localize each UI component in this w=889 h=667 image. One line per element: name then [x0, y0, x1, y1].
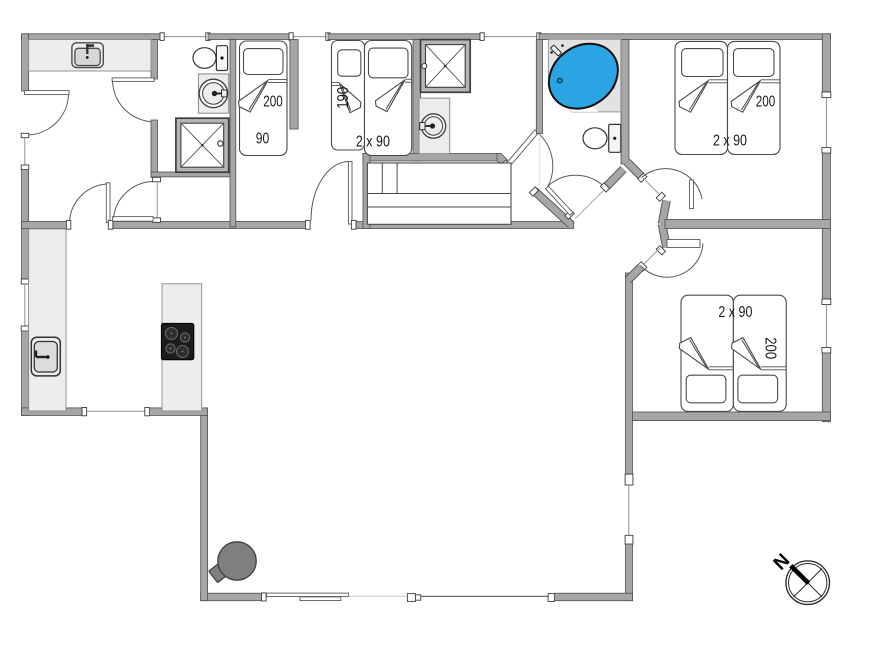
svg-text:2 x 90: 2 x 90: [356, 134, 390, 151]
svg-text:190: 190: [335, 86, 352, 108]
svg-text:200: 200: [756, 94, 776, 111]
svg-text:2 x 90: 2 x 90: [718, 304, 752, 321]
svg-text:200: 200: [762, 337, 779, 359]
svg-text:2 x 90: 2 x 90: [713, 133, 747, 150]
svg-text:200: 200: [263, 94, 283, 111]
svg-text:90: 90: [256, 131, 270, 148]
